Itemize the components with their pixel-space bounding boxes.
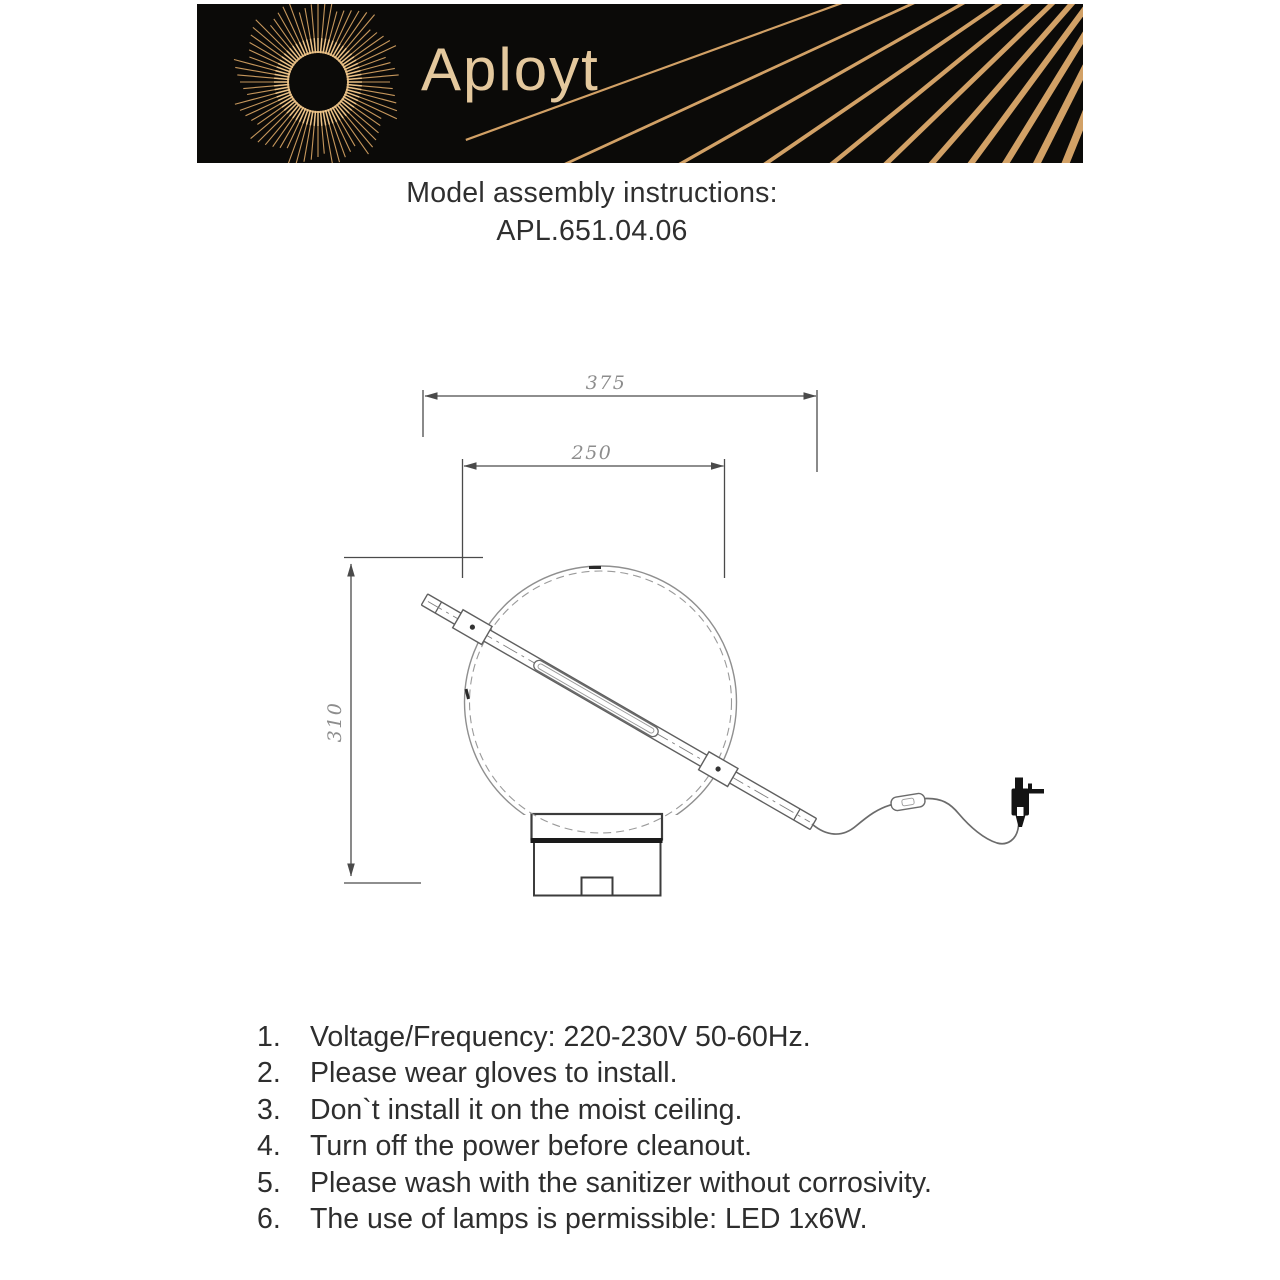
power-plug-icon [1012, 778, 1045, 828]
instruction-sheet: Aployt Model assembly instructions: APL.… [0, 0, 1280, 1280]
list-item: 3. Don`t install it on the moist ceiling… [257, 1092, 1117, 1128]
dim-label-375: 375 [586, 372, 627, 394]
sphere-seam-mark [466, 689, 469, 699]
item-text: The use of lamps is permissible: LED 1x6… [310, 1201, 1117, 1237]
dimension-tube-width [463, 459, 725, 578]
dim-label-250: 250 [571, 442, 613, 464]
item-text: Please wear gloves to install. [310, 1055, 1117, 1091]
item-text: Turn off the power before cleanout. [310, 1128, 1117, 1164]
list-item: 5. Please wash with the sanitizer withou… [257, 1165, 1117, 1201]
lamp-tube [419, 590, 818, 833]
dim-label-310: 310 [324, 702, 346, 743]
item-text: Please wash with the sanitizer without c… [310, 1165, 1117, 1201]
item-number: 4. [257, 1128, 310, 1164]
tube-slot [532, 658, 660, 738]
list-item: 4. Turn off the power before cleanout. [257, 1128, 1117, 1164]
item-number: 1. [257, 1019, 310, 1055]
list-item: 2. Please wear gloves to install. [257, 1055, 1117, 1091]
dimension-total-width [423, 390, 817, 472]
item-text: Voltage/Frequency: 220-230V 50-60Hz. [310, 1019, 1117, 1055]
item-number: 5. [257, 1165, 310, 1201]
item-number: 3. [257, 1092, 310, 1128]
inline-switch-icon [890, 793, 926, 812]
list-item: 1. Voltage/Frequency: 220-230V 50-60Hz. [257, 1019, 1117, 1055]
instruction-list: 1. Voltage/Frequency: 220-230V 50-60Hz. … [257, 1019, 1117, 1237]
item-text: Don`t install it on the moist ceiling. [310, 1092, 1117, 1128]
item-number: 6. [257, 1201, 310, 1237]
list-item: 6. The use of lamps is permissible: LED … [257, 1201, 1117, 1237]
item-number: 2. [257, 1055, 310, 1091]
dimension-height [344, 558, 483, 884]
